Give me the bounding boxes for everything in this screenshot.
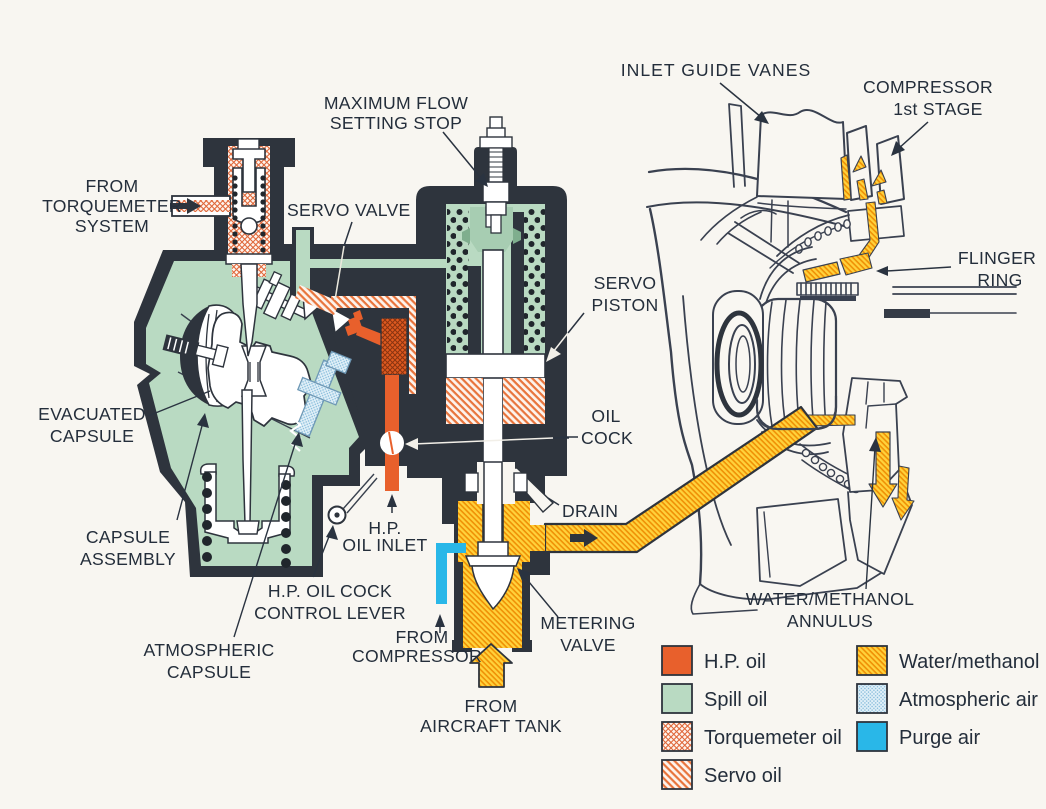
svg-text:CAPSULE: CAPSULE: [86, 527, 170, 547]
svg-text:Atmospheric air: Atmospheric air: [899, 689, 1038, 711]
svg-text:Spill oil: Spill oil: [704, 689, 767, 711]
svg-text:H.P. oil: H.P. oil: [704, 651, 766, 673]
svg-text:COMPRESSOR: COMPRESSOR: [863, 77, 993, 97]
svg-text:INLET GUIDE VANES: INLET GUIDE VANES: [621, 60, 811, 80]
svg-text:Water/methanol: Water/methanol: [899, 651, 1039, 673]
svg-text:SERVO: SERVO: [594, 273, 657, 293]
svg-text:Torquemeter oil: Torquemeter oil: [704, 727, 842, 749]
svg-text:VALVE: VALVE: [560, 635, 616, 655]
svg-text:H.P. OIL COCK: H.P. OIL COCK: [268, 581, 392, 601]
svg-text:Purge air: Purge air: [899, 727, 980, 749]
svg-text:FROM: FROM: [86, 176, 139, 196]
svg-text:CAPSULE: CAPSULE: [50, 426, 134, 446]
svg-text:TORQUEMETER: TORQUEMETER: [42, 196, 182, 216]
svg-text:AIRCRAFT TANK: AIRCRAFT TANK: [420, 716, 562, 736]
svg-text:ANNULUS: ANNULUS: [787, 611, 873, 631]
svg-text:OIL INLET: OIL INLET: [342, 535, 427, 555]
svg-text:FLINGER: FLINGER: [958, 248, 1036, 268]
svg-text:1st STAGE: 1st STAGE: [893, 99, 982, 119]
svg-text:DRAIN: DRAIN: [562, 501, 618, 521]
svg-text:Servo oil: Servo oil: [704, 765, 782, 787]
svg-text:COCK: COCK: [581, 428, 633, 448]
svg-text:SYSTEM: SYSTEM: [75, 216, 149, 236]
svg-text:ASSEMBLY: ASSEMBLY: [80, 549, 176, 569]
svg-text:SERVO VALVE: SERVO VALVE: [287, 200, 411, 220]
svg-text:WATER/METHANOL: WATER/METHANOL: [746, 589, 914, 609]
svg-text:OIL: OIL: [591, 406, 620, 426]
svg-text:PISTON: PISTON: [592, 295, 659, 315]
svg-text:CONTROL LEVER: CONTROL LEVER: [254, 603, 406, 623]
svg-text:FROM: FROM: [465, 696, 518, 716]
svg-text:SETTING STOP: SETTING STOP: [330, 113, 462, 133]
svg-text:RING: RING: [977, 270, 1022, 290]
svg-text:METERING: METERING: [540, 613, 635, 633]
svg-text:CAPSULE: CAPSULE: [167, 662, 251, 682]
svg-text:MAXIMUM FLOW: MAXIMUM FLOW: [324, 93, 468, 113]
svg-text:EVACUATED: EVACUATED: [38, 404, 146, 424]
svg-text:ATMOSPHERIC: ATMOSPHERIC: [143, 640, 274, 660]
svg-text:COMPRESSOR: COMPRESSOR: [352, 646, 482, 666]
